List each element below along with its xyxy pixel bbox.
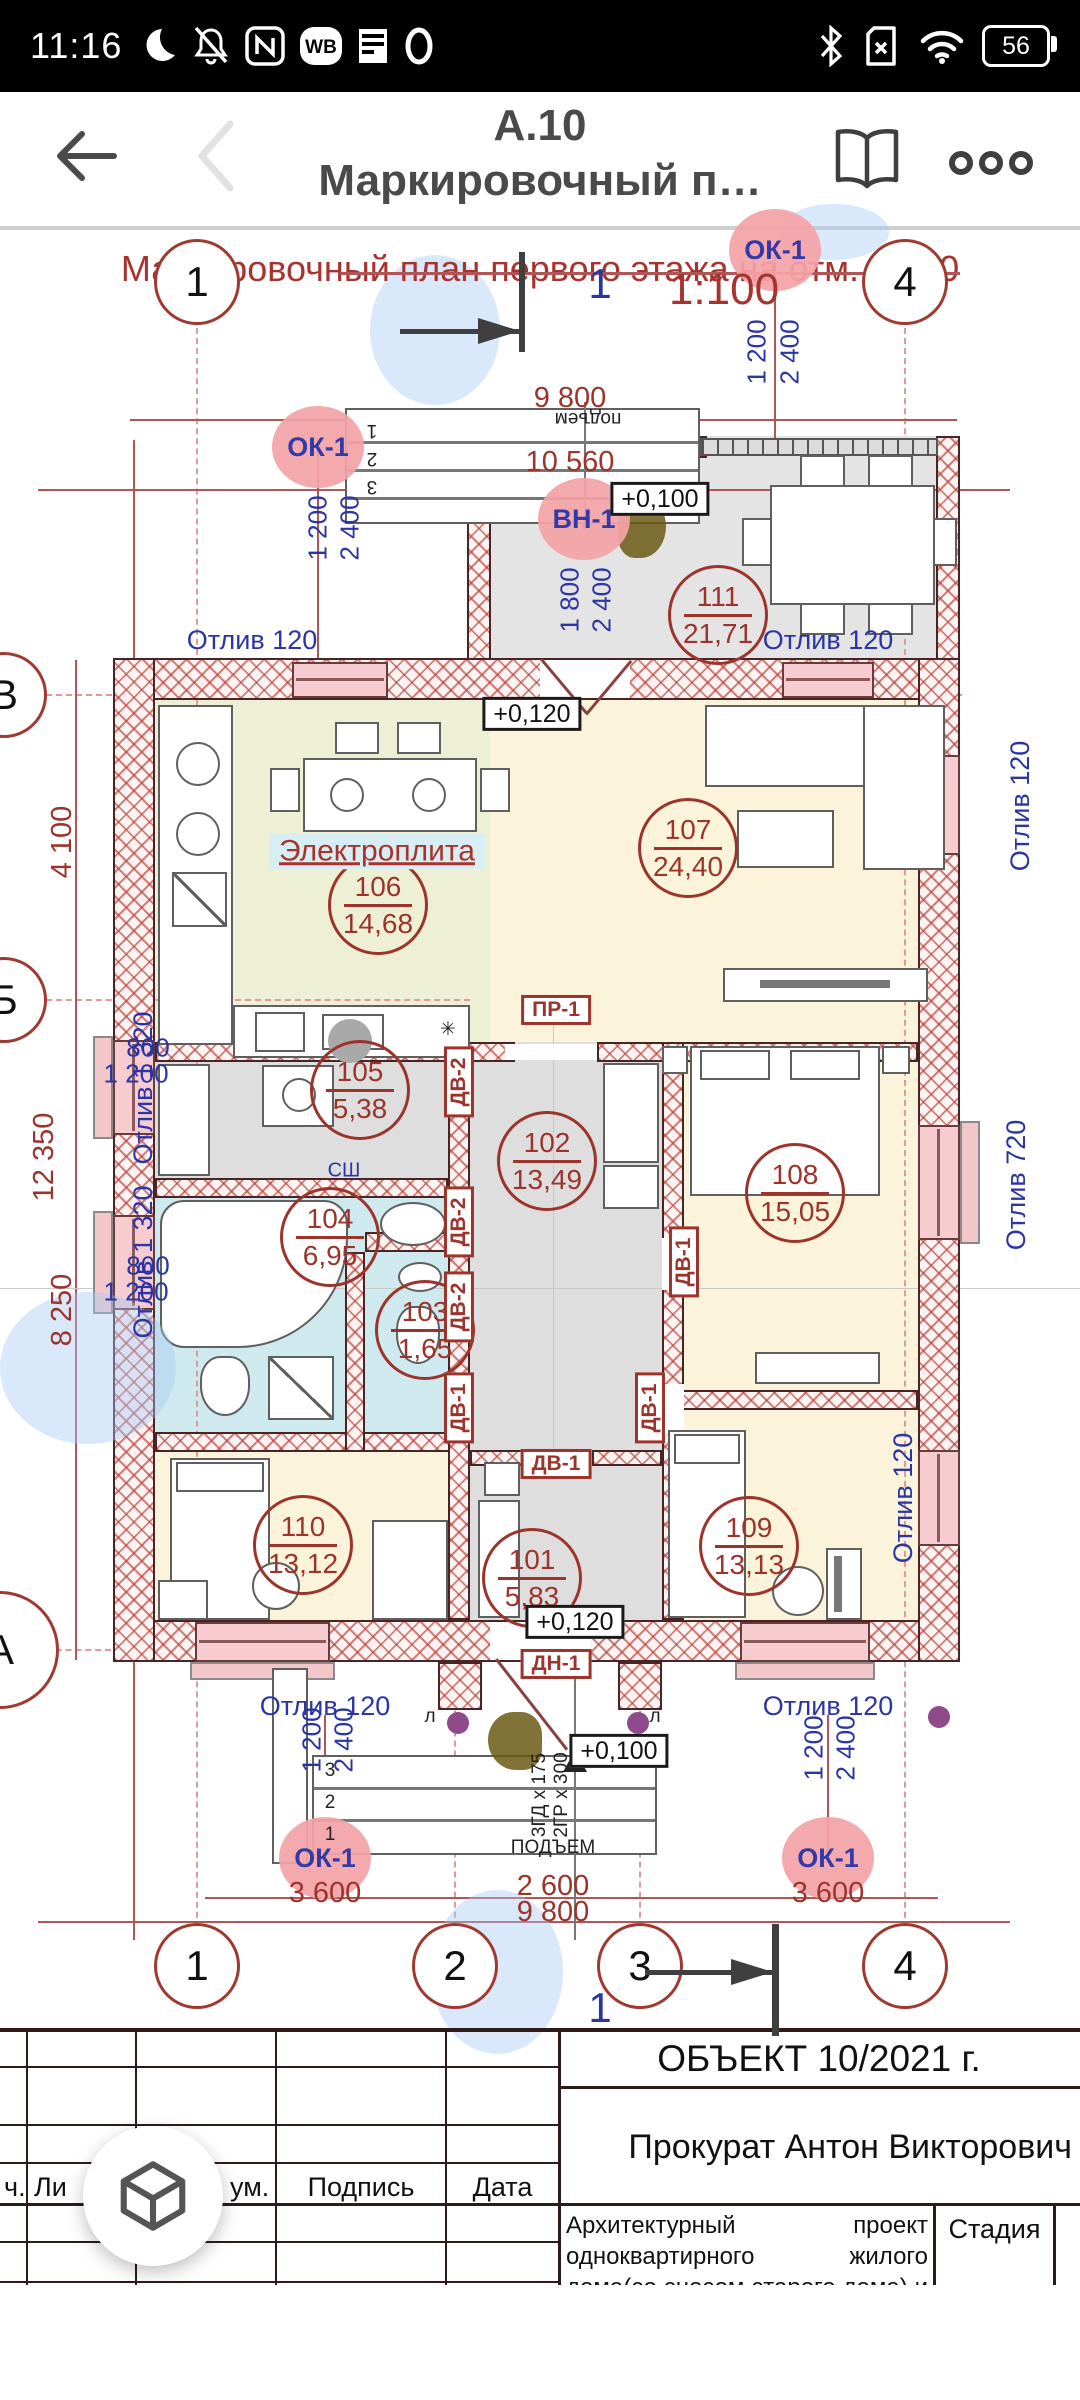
annotation: подъем: [555, 408, 622, 428]
cube-icon: [114, 2157, 192, 2235]
title-block-line: [275, 2028, 277, 2285]
column-marker: [447, 1712, 469, 1734]
kitchen-sink: [176, 812, 220, 856]
flashing-label: Отлив 120: [889, 1433, 917, 1564]
title-block-line: [445, 2028, 447, 2285]
view-3d-fab[interactable]: [83, 2126, 223, 2266]
dimension: 2 400: [832, 1715, 859, 1780]
sofa-corner: [863, 705, 945, 870]
room-stamp-102: 10213,49: [497, 1111, 597, 1211]
stove: [255, 1012, 305, 1052]
stair-step-line: [314, 1787, 655, 1790]
plate: [412, 778, 446, 812]
title-block-line: [0, 2241, 558, 2243]
dimension: 1 200: [304, 495, 331, 560]
chair: [480, 768, 510, 812]
window-mark-ОК-1: ОК-1: [272, 406, 364, 488]
porch-column: [438, 1662, 482, 1710]
title-block-line: [0, 2162, 558, 2164]
wall-interior: [592, 1450, 662, 1466]
col-ch: ч.: [4, 2172, 26, 2203]
room-stamp-104: 1046,95: [280, 1187, 380, 1287]
terrace-railing: [700, 438, 938, 456]
door-label-ДН-1: ДН-1: [521, 1649, 592, 1679]
pillow: [790, 1050, 860, 1080]
axis-line-b: [36, 999, 470, 1001]
wall-interior: [155, 1432, 470, 1452]
annotation: 3ГД х 175: [530, 1753, 550, 1837]
measure-handle[interactable]: [772, 1924, 779, 2036]
col-li: Ли: [34, 2172, 67, 2203]
level-mark: +0,120: [482, 697, 581, 731]
window: [918, 1125, 960, 1240]
axis-circle-1: 1: [154, 1923, 240, 2009]
door-label-ДВ-1: ДВ-1: [669, 1227, 699, 1298]
room-stamp-106: 10614,68: [328, 855, 428, 955]
chair: [270, 768, 300, 812]
door-label-ДВ-1: ДВ-1: [444, 1373, 474, 1444]
annotation: Электроплита: [269, 833, 485, 869]
dimension: 2 400: [588, 567, 615, 632]
door-opening: [662, 1384, 684, 1434]
annotation: 2ГР х 300: [552, 1752, 572, 1837]
flashing-label: Отлив 1 320: [129, 1185, 157, 1338]
author-name: Прокурат Антон Викторович: [560, 2128, 1072, 2167]
nightstand: [662, 1046, 688, 1074]
room-stamp-110: 11013,12: [253, 1495, 353, 1595]
navigation-bar: Realt: [0, 2285, 1080, 2400]
door-label-ДВ-2: ДВ-2: [444, 1187, 474, 1258]
annotation: 1:100: [669, 267, 779, 313]
annotation: 2: [325, 1793, 336, 1813]
sink: [380, 1202, 446, 1246]
pillow: [674, 1434, 740, 1464]
dimension: 10 560: [526, 447, 615, 477]
annotation: 1: [367, 420, 378, 440]
kitchen-cabinet: [172, 872, 227, 927]
dresser: [755, 1352, 880, 1384]
room-stamp-107: 10724,40: [638, 798, 738, 898]
dimension: 3 600: [289, 1878, 362, 1908]
chair: [800, 455, 845, 487]
dimension: 2 400: [776, 319, 803, 384]
annotation: 1: [588, 1986, 611, 2030]
annotation: 1: [588, 262, 611, 306]
window: [782, 662, 874, 698]
document-canvas[interactable]: Маркировочный план первого этажа на отм.…: [0, 0, 1080, 2400]
axis-circle-4: 4: [862, 239, 948, 325]
toilet: [200, 1356, 250, 1416]
title-block-line: [0, 2124, 558, 2126]
level-mark: +0,100: [569, 1734, 668, 1768]
pillow: [700, 1050, 770, 1080]
dimension: 3 600: [792, 1878, 865, 1908]
dimension: 2 400: [336, 495, 363, 560]
coffee-table: [737, 810, 834, 868]
axis-circle-1: 1: [154, 239, 240, 325]
page-seam-v: [553, 1005, 554, 1460]
axis-circle-4: 4: [862, 1923, 948, 2009]
desk: [826, 1548, 862, 1620]
chair: [397, 722, 441, 754]
window: [195, 1622, 330, 1662]
dimension: 1 200: [800, 1715, 827, 1780]
wall-interior: [662, 1390, 918, 1410]
col-sign: Подпись: [277, 2172, 445, 2203]
flashing-label: Отлив 120: [763, 1692, 894, 1720]
stair-step-line: [347, 441, 698, 444]
annotation: 2: [367, 448, 378, 468]
wardrobe: [603, 1165, 659, 1209]
window: [292, 662, 388, 698]
axis-circle-2: 2: [412, 1923, 498, 2009]
measure-handle[interactable]: [519, 252, 525, 352]
measure-arrowhead[interactable]: [731, 1959, 773, 1985]
window-sill: [735, 1662, 875, 1680]
annotation: л: [649, 1707, 660, 1727]
flashing-label: Отлив 1 320: [129, 1011, 157, 1164]
door-label-ДВ-1: ДВ-1: [521, 1449, 592, 1479]
room-stamp-109: 10913,13: [699, 1496, 799, 1596]
window-sill: [190, 1662, 335, 1680]
door-label-ДВ-2: ДВ-2: [444, 1272, 474, 1343]
wardrobe: [603, 1063, 659, 1163]
plan-title: Маркировочный план первого этажа на отм.…: [121, 248, 959, 290]
title-block-line: [1053, 2203, 1056, 2285]
room-stamp-111: 11121,71: [668, 565, 768, 665]
window: [740, 1622, 870, 1662]
porch-column: [618, 1662, 662, 1710]
phone-screen: 11:16 WB 56: [0, 0, 1080, 2400]
chair: [335, 722, 379, 754]
annotation: 1: [325, 1825, 336, 1845]
axis-circle-Б: Б: [0, 957, 47, 1043]
title-block-line: [0, 2066, 558, 2068]
column-marker: [928, 1706, 950, 1728]
dimension: 1 800: [556, 567, 583, 632]
dimension: 4 100: [47, 806, 77, 879]
level-mark: +0,120: [525, 1605, 624, 1639]
measure-arrowhead[interactable]: [478, 318, 520, 344]
shower: [268, 1356, 334, 1420]
flashing-label: Отлив 120: [187, 626, 318, 654]
dining-table: [770, 485, 935, 605]
window: [918, 1450, 960, 1546]
cabinet: [484, 1462, 520, 1496]
level-mark: +0,100: [610, 482, 709, 516]
chair: [868, 455, 913, 487]
col-date: Дата: [447, 2172, 558, 2203]
annotation: л: [424, 1707, 435, 1727]
annotation: СШ: [328, 1161, 361, 1182]
door-label-ДВ-2: ДВ-2: [444, 1047, 474, 1118]
title-block-line: [558, 2086, 1080, 2089]
monitor: [834, 1556, 842, 1612]
tv: [760, 980, 890, 988]
nightstand: [882, 1046, 910, 1074]
stair-step-line: [347, 469, 698, 472]
wardrobe: [372, 1520, 448, 1620]
flashing-label: Отлив 120: [1006, 741, 1034, 872]
door-opening-pr1: [505, 1044, 597, 1060]
title-block-border: [0, 2028, 1080, 2032]
chair: [742, 518, 772, 566]
stage-label: Стадия: [936, 2214, 1053, 2245]
kitchen-sink: [176, 742, 220, 786]
dimension: 12 350: [29, 1113, 59, 1202]
title-block-line: [26, 2028, 28, 2285]
door-label-ПР-1: ПР-1: [521, 995, 591, 1025]
axis-circle-А: А: [0, 1591, 59, 1709]
dimension: 1 200: [743, 319, 770, 384]
window-sill: [960, 1121, 980, 1244]
pillow: [176, 1462, 264, 1492]
chair: [933, 518, 957, 566]
flashing-label: Отлив 120: [763, 626, 894, 654]
door-label-ДВ-1: ДВ-1: [635, 1373, 665, 1444]
column-marker: [627, 1712, 649, 1734]
axis-circle-В: В: [0, 652, 47, 738]
dimension: 8 250: [47, 1274, 77, 1347]
flashing-label: Отлив 120: [260, 1692, 391, 1720]
dimension: 9 800: [517, 1897, 590, 1927]
room-stamp-105: 1055,38: [310, 1040, 410, 1140]
annotation: 3: [367, 476, 378, 496]
stair-step-line: [314, 1819, 655, 1822]
object-label: ОБЪЕКТ 10/2021 г.: [558, 2038, 1080, 2080]
plate: [330, 778, 364, 812]
room-stamp-108: 10815,05: [745, 1143, 845, 1243]
annotation: 3: [325, 1761, 336, 1781]
title-block-line: [0, 2281, 558, 2283]
annotation: ✳: [440, 1020, 456, 1040]
desk: [158, 1580, 208, 1620]
flashing-label: Отлив 720: [1002, 1120, 1030, 1251]
annotation: ПОДЪЕМ: [511, 1838, 595, 1858]
col-um: ум.: [230, 2172, 269, 2203]
